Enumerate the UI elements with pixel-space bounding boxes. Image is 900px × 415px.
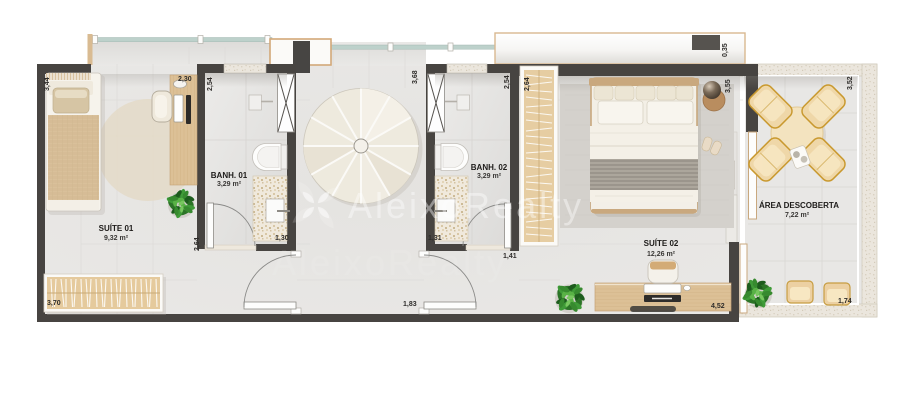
svg-text:1,30: 1,30 [275, 235, 289, 242]
svg-text:0,35: 0,35 [722, 43, 729, 57]
svg-text:SUÍTE 01: SUÍTE 01 [99, 224, 134, 233]
svg-text:3,68: 3,68 [412, 70, 419, 84]
svg-text:AleixoRealty: AleixoRealty [272, 242, 508, 283]
svg-text:2,30: 2,30 [178, 76, 192, 83]
svg-text:BANH. 02: BANH. 02 [471, 163, 508, 172]
svg-text:BANH. 01: BANH. 01 [211, 171, 248, 180]
svg-text:9,32 m²: 9,32 m² [104, 235, 129, 242]
svg-text:AleixoRealty: AleixoRealty [348, 185, 584, 226]
svg-text:1,83: 1,83 [403, 301, 417, 308]
svg-text:2,64: 2,64 [524, 77, 531, 91]
svg-text:ÁREA DESCOBERTA: ÁREA DESCOBERTA [759, 201, 839, 210]
svg-text:3,55: 3,55 [725, 79, 732, 93]
svg-text:7,22 m²: 7,22 m² [785, 212, 810, 219]
svg-text:2,64: 2,64 [194, 237, 201, 251]
svg-text:3,44: 3,44 [44, 77, 51, 91]
svg-text:SUÍTE 02: SUÍTE 02 [644, 239, 679, 248]
svg-text:1,74: 1,74 [838, 298, 852, 305]
svg-text:12,26 m²: 12,26 m² [647, 251, 676, 258]
svg-text:2,54: 2,54 [504, 75, 511, 89]
svg-text:3,29 m²: 3,29 m² [477, 173, 502, 180]
svg-text:1,31: 1,31 [428, 235, 442, 242]
svg-text:4,52: 4,52 [711, 303, 725, 310]
svg-text:1,41: 1,41 [503, 253, 517, 260]
svg-text:3,29 m²: 3,29 m² [217, 181, 242, 188]
svg-text:3,70: 3,70 [47, 300, 61, 307]
svg-text:2,54: 2,54 [207, 77, 214, 91]
svg-text:3,52: 3,52 [847, 76, 854, 90]
